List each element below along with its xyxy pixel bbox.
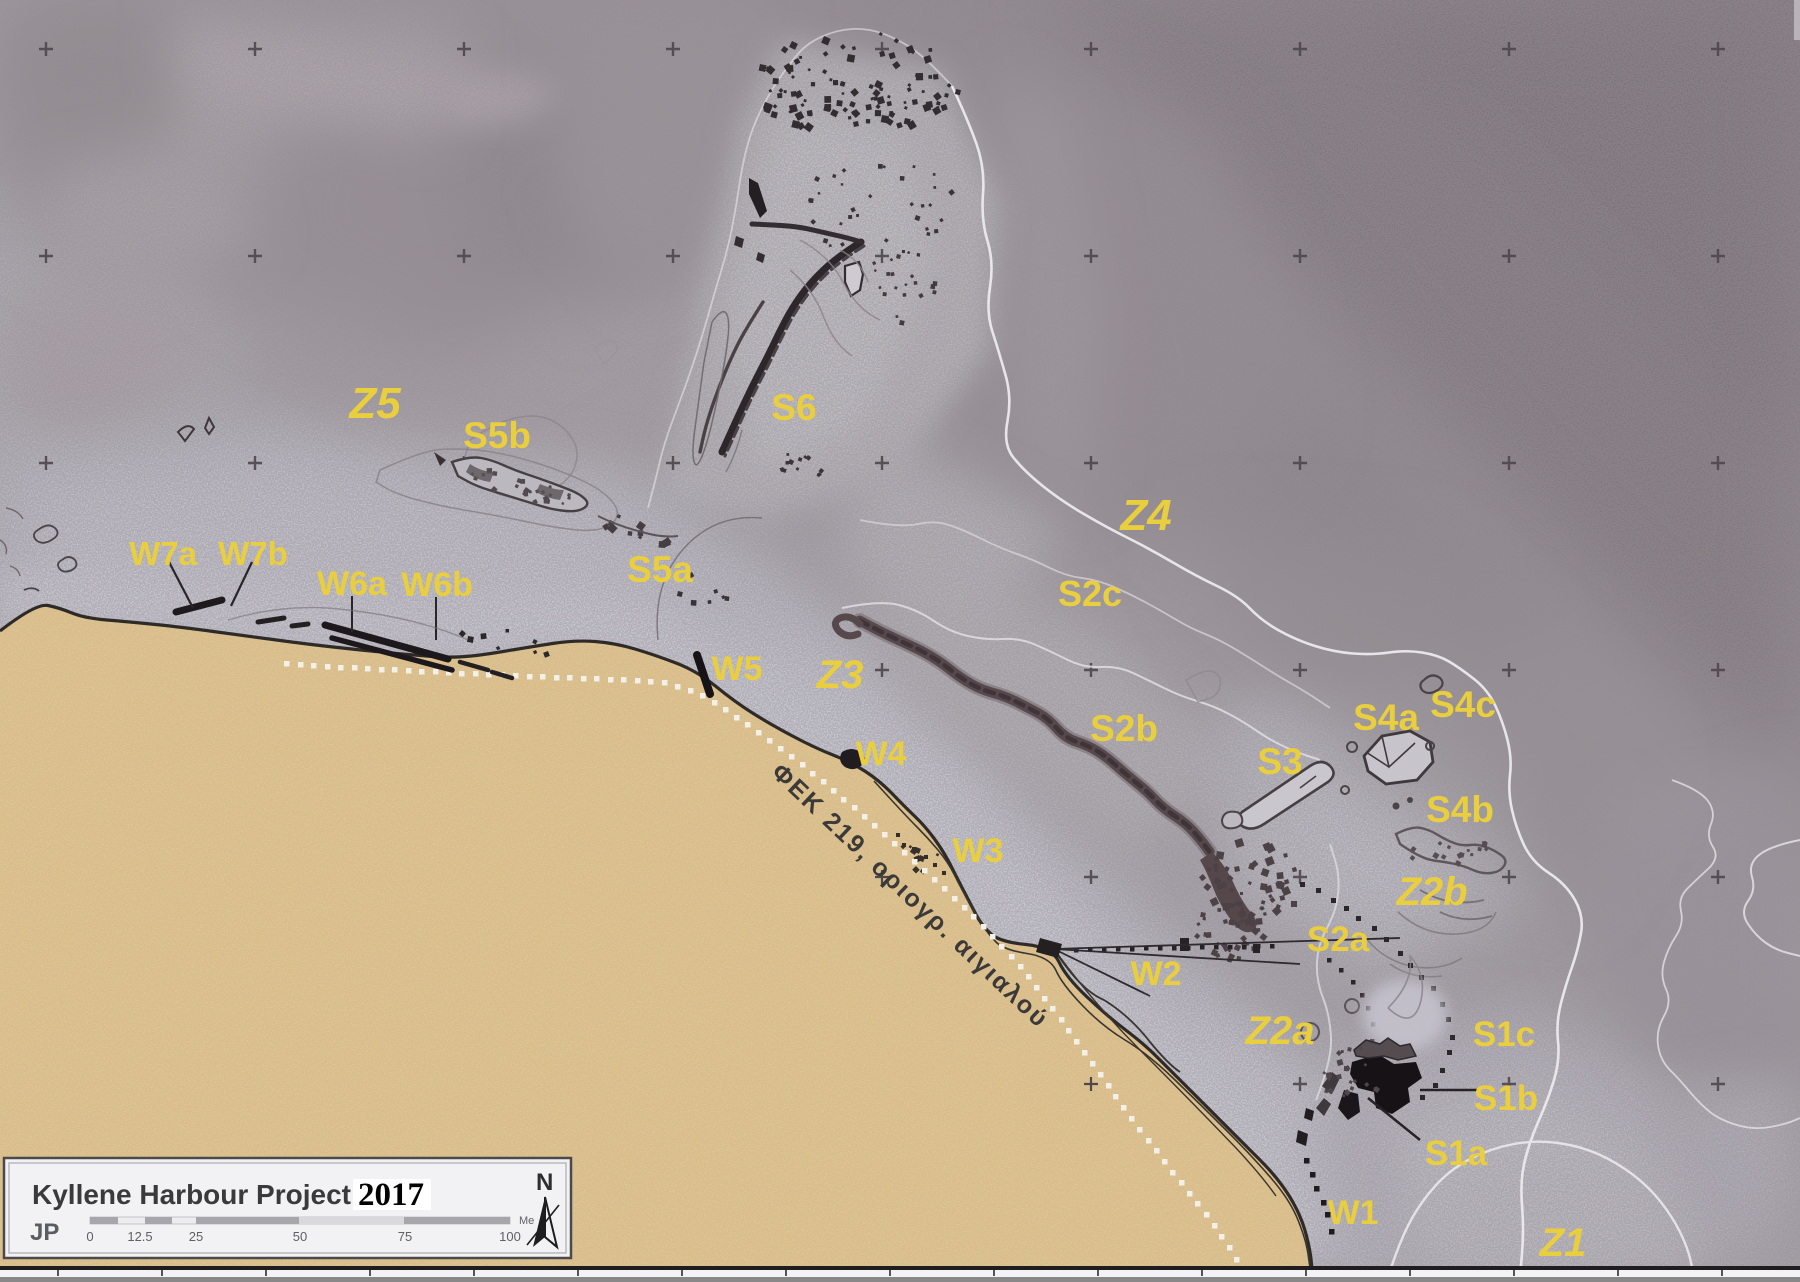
svg-text:W1: W1 xyxy=(1328,1194,1379,1232)
svg-text:S5b: S5b xyxy=(463,415,531,456)
svg-text:N: N xyxy=(536,1169,553,1196)
svg-text:0: 0 xyxy=(86,1229,93,1244)
svg-text:S3: S3 xyxy=(1257,741,1302,782)
svg-text:25: 25 xyxy=(189,1229,203,1244)
svg-text:JP: JP xyxy=(30,1219,59,1246)
svg-text:W6b: W6b xyxy=(401,566,473,604)
svg-text:S2a: S2a xyxy=(1307,920,1370,959)
svg-text:S4b: S4b xyxy=(1426,789,1494,830)
svg-text:S1a: S1a xyxy=(1425,1134,1488,1173)
svg-text:12.5: 12.5 xyxy=(127,1229,152,1244)
svg-text:S2b: S2b xyxy=(1090,708,1158,749)
svg-text:S2c: S2c xyxy=(1058,573,1122,614)
svg-text:50: 50 xyxy=(293,1229,307,1244)
svg-text:Kyllene Harbour Project: Kyllene Harbour Project xyxy=(32,1179,351,1210)
svg-text:S1b: S1b xyxy=(1474,1079,1538,1118)
svg-text:Z1: Z1 xyxy=(1539,1221,1587,1265)
svg-text:Z2b: Z2b xyxy=(1395,870,1467,914)
svg-text:75: 75 xyxy=(398,1229,412,1244)
svg-text:S4c: S4c xyxy=(1430,684,1496,725)
svg-text:S5a: S5a xyxy=(627,549,693,590)
svg-text:S6: S6 xyxy=(771,387,816,428)
svg-text:W3: W3 xyxy=(953,832,1004,870)
svg-text:Z3: Z3 xyxy=(816,653,864,697)
svg-text:W7b: W7b xyxy=(218,535,288,572)
svg-text:W7a: W7a xyxy=(129,535,198,572)
svg-text:W6a: W6a xyxy=(317,565,388,603)
svg-text:W5: W5 xyxy=(712,650,763,688)
svg-text:Z5: Z5 xyxy=(347,379,401,428)
svg-text:2017: 2017 xyxy=(358,1177,424,1213)
svg-text:W4: W4 xyxy=(856,735,907,773)
svg-text:W2: W2 xyxy=(1131,955,1182,993)
svg-text:S1c: S1c xyxy=(1473,1015,1535,1054)
svg-text:Me: Me xyxy=(519,1215,534,1227)
svg-text:Z2a: Z2a xyxy=(1245,1009,1315,1053)
svg-text:S4a: S4a xyxy=(1353,697,1419,738)
svg-text:Z4: Z4 xyxy=(1118,491,1171,540)
svg-text:100: 100 xyxy=(499,1229,521,1244)
